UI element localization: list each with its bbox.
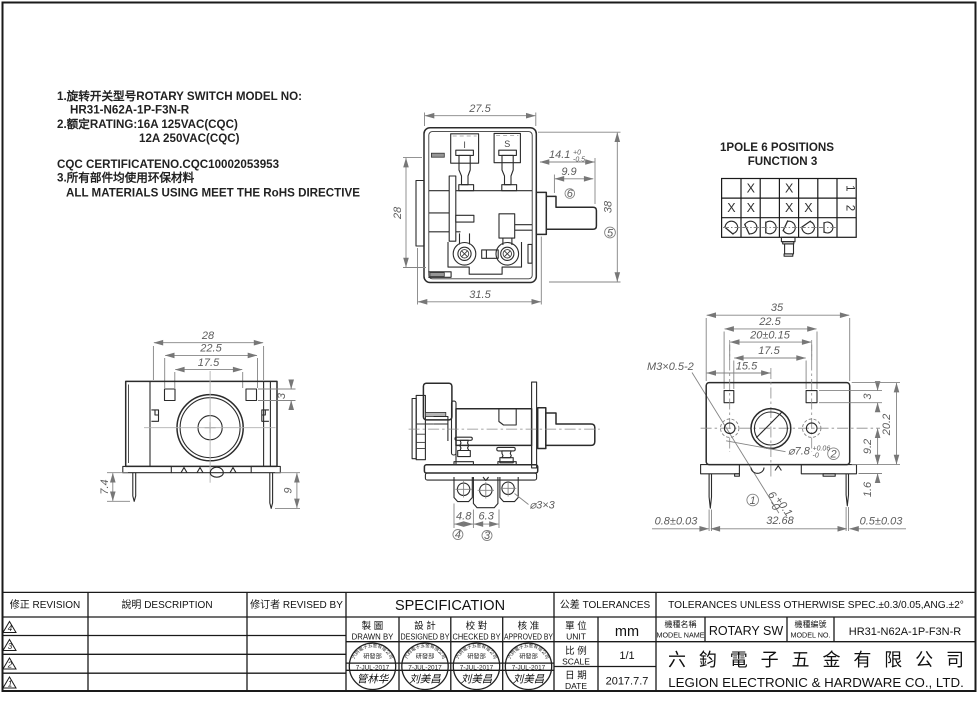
svg-text:單 位: 單 位	[565, 620, 587, 632]
svg-text:ROTARY SW: ROTARY SW	[709, 624, 784, 638]
svg-text:機種名稱: 機種名稱	[665, 619, 697, 629]
svg-text:說明 DESCRIPTION: 說明 DESCRIPTION	[121, 598, 212, 611]
svg-text:4: 4	[8, 624, 13, 633]
svg-text:2: 2	[844, 205, 856, 211]
svg-text:修订者 REVISED BY: 修订者 REVISED BY	[250, 598, 343, 611]
svg-text:⌀7.8: ⌀7.8	[788, 446, 811, 458]
svg-text:MODEL NO.: MODEL NO.	[790, 631, 830, 640]
svg-text:0.5±0.03: 0.5±0.03	[860, 516, 904, 528]
svg-text:⌀3×3: ⌀3×3	[530, 500, 556, 512]
svg-text:2017.7.7: 2017.7.7	[606, 676, 649, 688]
svg-text:HR31-N62A-1P-F3N-R: HR31-N62A-1P-F3N-R	[849, 626, 962, 638]
svg-text:38: 38	[603, 200, 615, 213]
svg-text:LEGION ELECTRONIC & HARDWARE C: LEGION ELECTRONIC & HARDWARE CO., LTD.	[668, 675, 964, 690]
svg-text:15.5: 15.5	[736, 360, 758, 372]
svg-text:28: 28	[201, 330, 215, 342]
svg-text:-0.5: -0.5	[573, 157, 585, 164]
svg-text:SPECIFICATION: SPECIFICATION	[395, 598, 505, 614]
svg-text:9: 9	[283, 487, 295, 493]
svg-text:3: 3	[276, 392, 288, 399]
svg-text:CHECKED BY: CHECKED BY	[453, 633, 502, 642]
svg-text:-0: -0	[813, 453, 819, 460]
svg-text:研發部: 研發部	[467, 652, 486, 660]
svg-text:APPROVED BY: APPROVED BY	[504, 633, 554, 642]
svg-text:核 准: 核 准	[518, 620, 540, 632]
svg-text:MODEL NAME: MODEL NAME	[656, 631, 704, 640]
svg-text:校 對: 校 對	[466, 620, 488, 632]
svg-text:公差 TOLERANCES: 公差 TOLERANCES	[560, 598, 651, 611]
svg-text:17.5: 17.5	[758, 345, 780, 357]
svg-text:3: 3	[862, 393, 874, 400]
svg-text:3: 3	[484, 530, 491, 542]
svg-text:DRAWN BY: DRAWN BY	[352, 633, 395, 642]
svg-text:HR31-N62A-1P-F3N-R: HR31-N62A-1P-F3N-R	[70, 104, 190, 117]
svg-text:1: 1	[750, 495, 756, 507]
svg-text:日 期: 日 期	[565, 671, 587, 682]
svg-text:5: 5	[607, 227, 614, 239]
svg-text:0.8±0.03: 0.8±0.03	[655, 516, 699, 528]
svg-text:刘美昌: 刘美昌	[409, 673, 441, 685]
svg-text:9.9: 9.9	[561, 166, 576, 178]
svg-text:27.5: 27.5	[468, 103, 491, 115]
svg-text:22.5: 22.5	[758, 316, 781, 328]
svg-text:刘美昌: 刘美昌	[513, 673, 545, 685]
svg-text:S: S	[504, 139, 510, 149]
svg-text:刘美昌: 刘美昌	[461, 673, 493, 685]
svg-text:製 圖: 製 圖	[362, 620, 384, 632]
svg-text:1.旋转开关型号ROTARY SWITCH MODEL NO: 1.旋转开关型号ROTARY SWITCH MODEL NO:	[57, 89, 302, 103]
svg-text:比 例: 比 例	[565, 645, 587, 657]
svg-text:14.1: 14.1	[549, 149, 570, 161]
svg-text:研發部: 研發部	[416, 652, 435, 660]
svg-text:+0.06: +0.06	[813, 446, 831, 453]
svg-text:ALL MATERIALS USING MEET THE R: ALL MATERIALS USING MEET THE RoHS DIRECT…	[66, 186, 360, 199]
svg-text:2.额定RATING:16A 125VAC(CQC): 2.额定RATING:16A 125VAC(CQC)	[57, 117, 238, 131]
svg-text:UNIT: UNIT	[566, 632, 586, 642]
svg-text:2: 2	[7, 661, 13, 670]
svg-text:I: I	[463, 140, 466, 150]
svg-text:20±0.15: 20±0.15	[749, 329, 791, 341]
svg-text:7-JUL-2017: 7-JUL-2017	[512, 665, 546, 672]
svg-text:管林华: 管林华	[357, 673, 390, 685]
svg-text:7-JUL-2017: 7-JUL-2017	[460, 665, 494, 672]
svg-text:3: 3	[8, 642, 13, 651]
svg-text:機種編號: 機種編號	[795, 619, 827, 629]
svg-text:32.68: 32.68	[766, 515, 794, 527]
svg-text:FUNCTION 3: FUNCTION 3	[748, 155, 818, 168]
svg-text:DESIGNED BY: DESIGNED BY	[401, 633, 451, 642]
svg-text:1: 1	[844, 185, 856, 191]
svg-text:CQC CERTIFICATENO.CQC100020539: CQC CERTIFICATENO.CQC10002053953	[57, 158, 280, 171]
svg-text:17.5: 17.5	[198, 357, 220, 369]
svg-text:2: 2	[829, 449, 836, 461]
svg-text:TOLERANCES UNLESS OTHERWISE SP: TOLERANCES UNLESS OTHERWISE SPEC.±0.3/0.…	[668, 600, 964, 611]
svg-text:3.所有部件均使用环保材料: 3.所有部件均使用环保材料	[57, 170, 195, 184]
svg-text:六 鈞 電 子 五 金 有 限 公 司: 六 鈞 電 子 五 金 有 限 公 司	[668, 650, 964, 670]
svg-text:12A 250VAC(CQC): 12A 250VAC(CQC)	[139, 132, 240, 145]
svg-text:mm: mm	[615, 624, 639, 640]
svg-text:9.2: 9.2	[862, 439, 874, 454]
svg-text:修正 REVISION: 修正 REVISION	[10, 598, 81, 611]
svg-text:X: X	[747, 201, 756, 215]
svg-text:20.2: 20.2	[881, 414, 893, 436]
svg-text:DATE: DATE	[565, 681, 587, 691]
svg-text:+0: +0	[573, 150, 581, 157]
svg-text:7.4: 7.4	[99, 479, 111, 494]
svg-text:X: X	[804, 201, 813, 215]
svg-text:研發部: 研發部	[363, 652, 382, 660]
svg-text:22.5: 22.5	[199, 343, 222, 355]
svg-text:6.3: 6.3	[479, 511, 495, 523]
svg-text:1.6: 1.6	[862, 481, 874, 497]
svg-text:M3×0.5-2: M3×0.5-2	[647, 361, 694, 373]
svg-text:35: 35	[771, 302, 784, 314]
svg-text:31.5: 31.5	[469, 289, 491, 301]
svg-text:7-JUL-2017: 7-JUL-2017	[408, 665, 442, 672]
svg-text:X: X	[785, 201, 794, 215]
svg-text:1POLE 6 POSITIONS: 1POLE 6 POSITIONS	[720, 141, 834, 154]
svg-text:1/1: 1/1	[619, 650, 634, 662]
svg-text:研發部: 研發部	[519, 652, 538, 660]
svg-text:設 計: 設 計	[414, 620, 436, 632]
svg-text:4: 4	[455, 529, 461, 541]
svg-text:1: 1	[8, 680, 12, 689]
svg-text:7-JUL-2017: 7-JUL-2017	[356, 665, 390, 672]
svg-text:X: X	[747, 182, 756, 196]
svg-text:X: X	[785, 182, 794, 196]
svg-text:6: 6	[567, 188, 574, 200]
svg-text:4.8: 4.8	[456, 511, 472, 523]
svg-text:28: 28	[392, 206, 404, 220]
svg-text:X: X	[727, 201, 736, 215]
svg-text:SCALE: SCALE	[562, 657, 590, 667]
